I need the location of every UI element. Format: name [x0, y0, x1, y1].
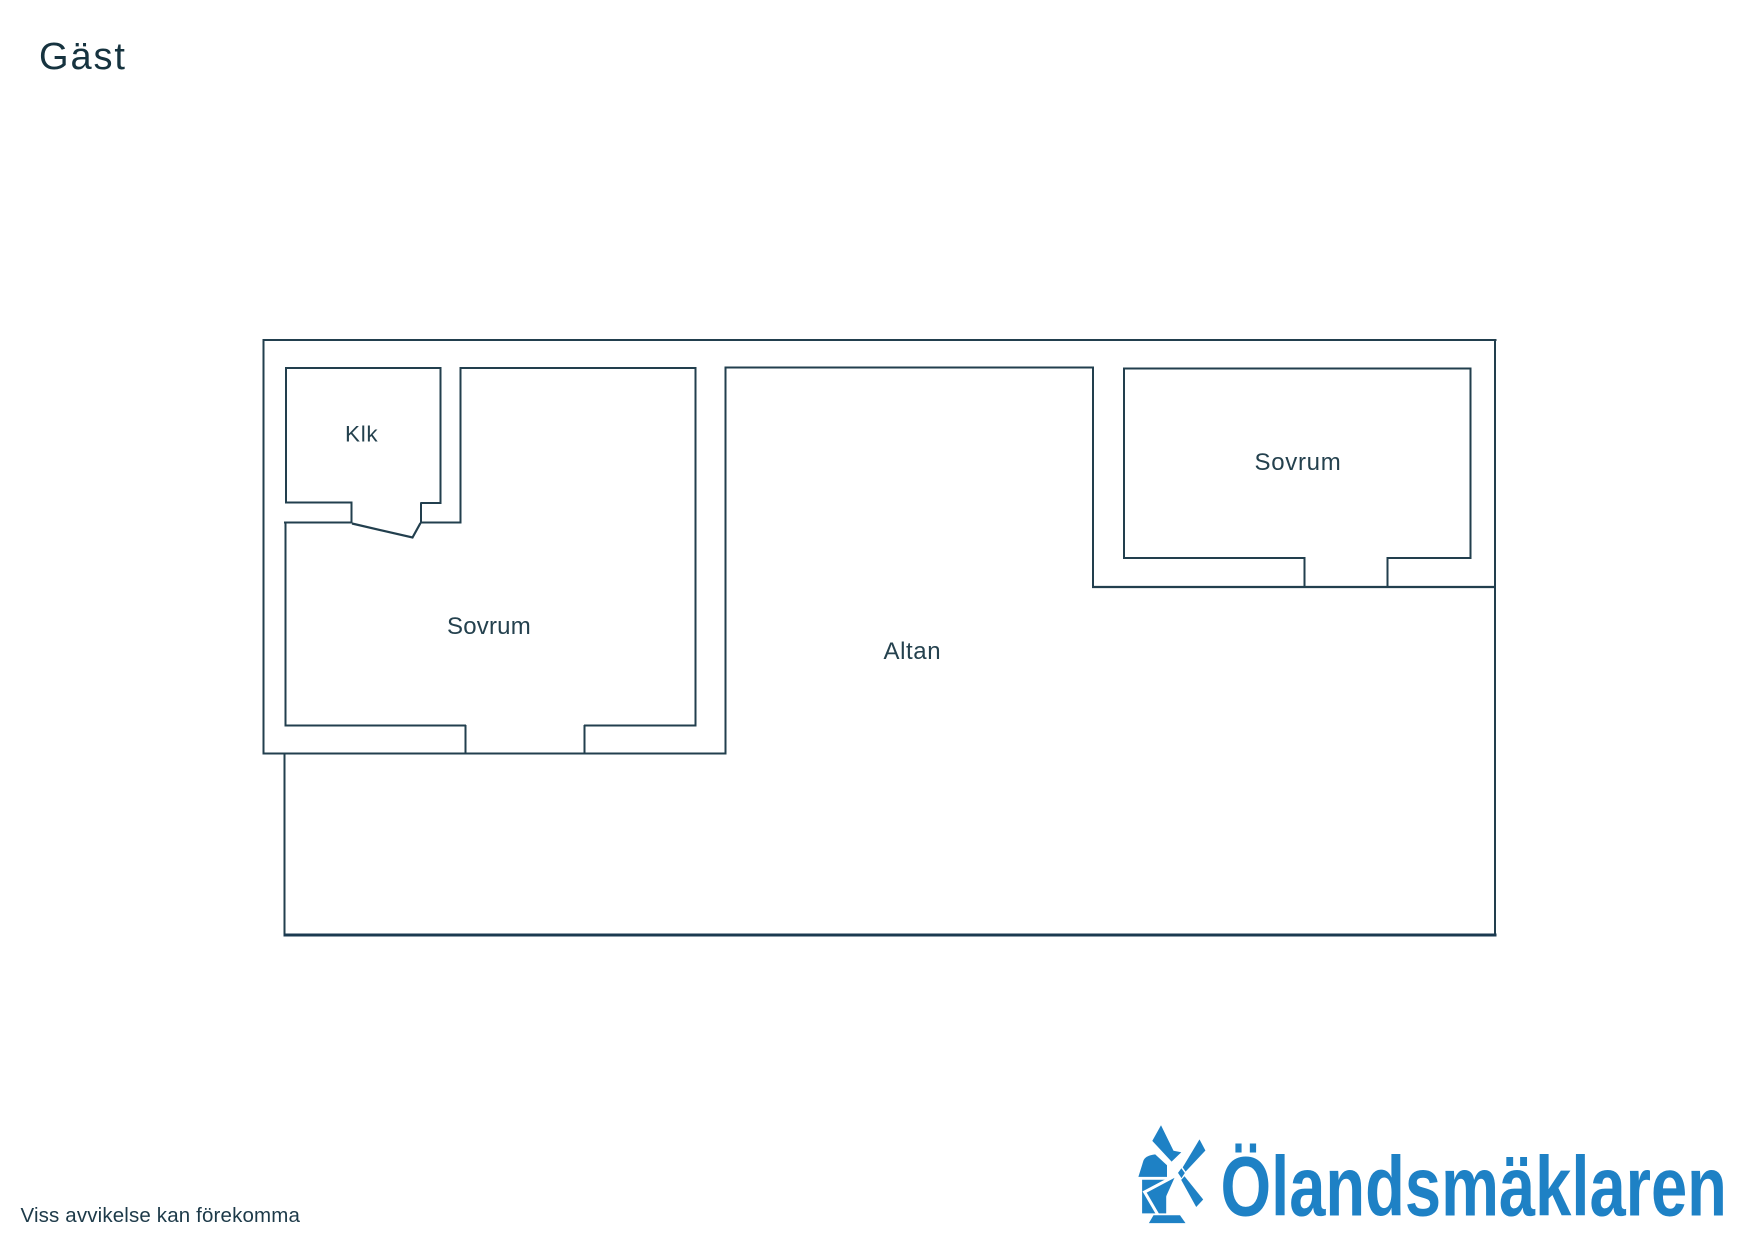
svg-text:Sovrum: Sovrum — [447, 613, 531, 640]
svg-text:Viss avvikelse kan förekomma: Viss avvikelse kan förekomma — [21, 1204, 301, 1227]
svg-text:Gäst: Gäst — [39, 36, 127, 78]
svg-text:Altan: Altan — [884, 638, 942, 665]
svg-text:Ölandsmäklaren: Ölandsmäklaren — [1221, 1139, 1727, 1233]
svg-text:Klk: Klk — [345, 422, 378, 447]
svg-text:Sovrum: Sovrum — [1255, 449, 1342, 476]
